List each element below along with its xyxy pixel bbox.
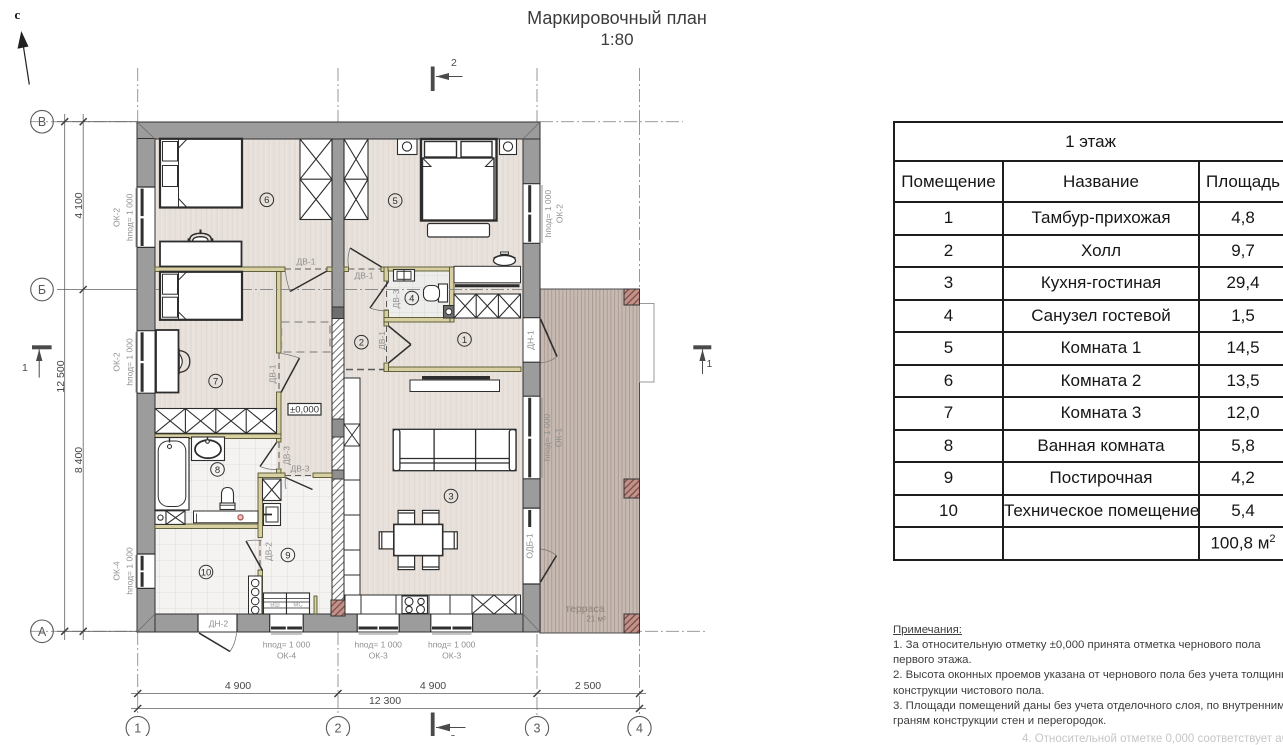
svg-text:hпод= 1 000: hпод= 1 000 bbox=[125, 338, 135, 386]
svg-text:2 500: 2 500 bbox=[575, 680, 601, 692]
svg-text:ДВ-1: ДВ-1 bbox=[268, 364, 278, 383]
svg-text:2: 2 bbox=[451, 57, 457, 69]
svg-text:Б: Б bbox=[38, 283, 46, 297]
svg-text:МС: МС bbox=[293, 603, 303, 609]
svg-text:9: 9 bbox=[285, 550, 290, 561]
svg-text:21 м²: 21 м² bbox=[586, 615, 606, 624]
svg-text:3: 3 bbox=[534, 722, 541, 736]
svg-text:ОК-2: ОК-2 bbox=[112, 352, 122, 371]
svg-text:hпод= 1 000: hпод= 1 000 bbox=[354, 640, 402, 650]
svg-text:ДВ-1: ДВ-1 bbox=[297, 257, 316, 267]
svg-text:В: В bbox=[38, 115, 46, 129]
svg-text:ОК-4: ОК-4 bbox=[277, 651, 296, 661]
svg-text:2: 2 bbox=[359, 338, 364, 349]
svg-text:ОК-2: ОК-2 bbox=[555, 204, 565, 223]
svg-text:1: 1 bbox=[462, 335, 467, 346]
svg-text:А: А bbox=[38, 625, 47, 639]
svg-text:8: 8 bbox=[215, 465, 220, 476]
svg-text:hпод= 1 000: hпод= 1 000 bbox=[543, 190, 553, 238]
svg-text:4 900: 4 900 bbox=[225, 680, 251, 692]
svg-text:1: 1 bbox=[707, 358, 713, 370]
svg-text:3: 3 bbox=[448, 491, 453, 502]
svg-text:ДВ-3: ДВ-3 bbox=[291, 464, 310, 474]
svg-text:hпод= 1 000: hпод= 1 000 bbox=[428, 640, 476, 650]
svg-text:±0,000: ±0,000 bbox=[290, 405, 319, 416]
svg-text:hпод= 1 000: hпод= 1 000 bbox=[125, 193, 135, 241]
svg-text:ОК-4: ОК-4 bbox=[112, 561, 122, 580]
svg-text:hпод= 1 000: hпод= 1 000 bbox=[263, 640, 311, 650]
svg-text:ДВ-3: ДВ-3 bbox=[391, 289, 401, 308]
svg-text:терраса: терраса bbox=[565, 603, 604, 615]
svg-text:7: 7 bbox=[213, 376, 218, 387]
svg-text:ВШ: ВШ bbox=[270, 603, 280, 609]
svg-text:ДВ-3: ДВ-3 bbox=[282, 446, 292, 465]
svg-text:ОДБ-1: ОДБ-1 bbox=[525, 533, 535, 559]
svg-text:1: 1 bbox=[134, 722, 141, 736]
svg-text:6: 6 bbox=[264, 195, 269, 206]
svg-text:12 300: 12 300 bbox=[369, 695, 401, 707]
svg-text:1: 1 bbox=[22, 362, 28, 374]
svg-text:с: с bbox=[15, 7, 21, 22]
svg-text:hпод= 1 000: hпод= 1 000 bbox=[125, 547, 135, 595]
svg-text:ДВ-2: ДВ-2 bbox=[264, 542, 274, 561]
svg-text:ДВ-1: ДВ-1 bbox=[355, 271, 374, 281]
svg-text:ДН-2: ДН-2 bbox=[209, 619, 229, 629]
svg-text:4 900: 4 900 bbox=[420, 680, 446, 692]
svg-text:4: 4 bbox=[636, 722, 643, 736]
svg-text:ОК-3: ОК-3 bbox=[369, 651, 388, 661]
svg-text:4: 4 bbox=[409, 293, 414, 304]
svg-text:4 100: 4 100 bbox=[73, 192, 85, 218]
svg-text:10: 10 bbox=[201, 567, 212, 578]
svg-text:hпод= 1 000: hпод= 1 000 bbox=[542, 414, 552, 462]
svg-text:2: 2 bbox=[335, 722, 342, 736]
svg-text:ДВ-1: ДВ-1 bbox=[377, 331, 387, 350]
svg-text:8 400: 8 400 bbox=[73, 447, 85, 473]
svg-text:5: 5 bbox=[393, 196, 398, 207]
svg-text:12 500: 12 500 bbox=[55, 360, 67, 392]
svg-text:ОК-3: ОК-3 bbox=[442, 651, 461, 661]
svg-text:ДН-1: ДН-1 bbox=[526, 330, 536, 350]
svg-text:ОК-1: ОК-1 bbox=[554, 428, 564, 447]
svg-text:ОК-2: ОК-2 bbox=[112, 208, 122, 227]
